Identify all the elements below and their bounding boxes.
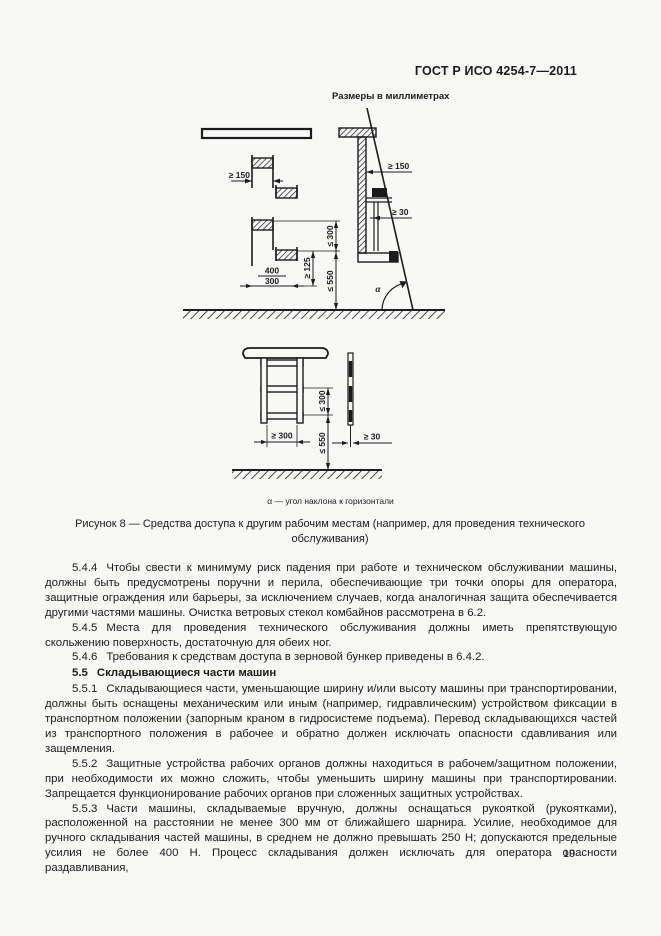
dim-clearance-height-label: ≥ 125: [302, 257, 312, 278]
body-text: 5.4.4Чтобы свести к минимуму риск падени…: [45, 561, 617, 876]
platform-cap: [243, 348, 328, 358]
dim-width-min-label: 300: [265, 276, 279, 286]
ladder-front-view: [261, 358, 303, 423]
angle-symbol-label: α: [375, 285, 381, 295]
angle-annotation: α: [375, 281, 407, 310]
ladder-side-view: [348, 353, 353, 447]
paragraph-5-5-1: 5.5.1Складывающиеся части, уменьшающие ш…: [45, 682, 617, 757]
clause-number: 5.5: [72, 667, 88, 679]
paragraph-5-4-6: 5.4.6Требования к средствам доступа в зе…: [45, 650, 617, 665]
dim-step-width: 400 300: [240, 266, 304, 289]
section-heading-5-5: 5.5Складывающиеся части машин: [45, 666, 617, 681]
dim-first-step-height-label: ≤ 550: [325, 270, 335, 291]
ground-hatching: [232, 470, 382, 479]
dim-ladder-width: ≥ 300: [254, 425, 310, 447]
dim-toe-clearance: ≥ 150: [366, 161, 412, 174]
clause-text: Требования к средствам доступа в зерново…: [106, 651, 484, 663]
paragraph-5-4-5: 5.4.5Места для проведения технического о…: [45, 621, 617, 651]
dim-rung-pitch-label: ≤ 300: [317, 390, 327, 411]
figure-8-diagram-ladder: ≥ 300 ≤ 300 ≤ 550 ≥ 30: [225, 340, 395, 485]
ground-hatching: [183, 310, 445, 319]
clause-text: Места для проведения технического обслуж…: [45, 622, 617, 649]
dim-width-preferred-label: 400: [265, 266, 279, 276]
clause-text: Части машины, складываемые вручную, долж…: [45, 803, 617, 875]
dim-rung-pitch-chain: ≤ 300 ≤ 550: [303, 388, 333, 470]
figure-8-diagram-steps: ≥ 150 400 300 ≤ 300 ≥ 125 ≤ 550: [175, 103, 455, 325]
dim-step-pitch-label: ≤ 300: [325, 225, 335, 246]
clause-text: Защитные устройства рабочих органов долж…: [45, 758, 617, 800]
paragraph-5-4-4: 5.4.4Чтобы свести к минимуму риск падени…: [45, 561, 617, 621]
figure-caption: Рисунок 8 — Средства доступа к другим ра…: [55, 517, 605, 546]
figure-alpha-note: α — угол наклона к горизонтали: [0, 496, 661, 506]
clause-number: 5.4.4: [72, 562, 97, 574]
clause-text: Складывающиеся части, уменьшающие ширину…: [45, 683, 617, 755]
dim-first-rung-height-label: ≤ 550: [317, 432, 327, 453]
clause-text: Чтобы свести к минимуму риск падения при…: [45, 562, 617, 619]
clause-number: 5.5.1: [72, 683, 97, 695]
figure-units-label: Размеры в миллиметрах: [332, 91, 449, 102]
clause-text: Складывающиеся части машин: [97, 667, 276, 679]
dim-ladder-width-label: ≥ 300: [271, 431, 292, 441]
clause-number: 5.4.5: [72, 622, 97, 634]
clause-number: 5.5.2: [72, 758, 97, 770]
dim-chains-right: ≤ 300 ≥ 125 ≤ 550: [273, 221, 340, 310]
dim-step-depth-label: ≥ 150: [229, 170, 250, 180]
dim-toe-clearance-label: ≥ 150: [388, 161, 409, 171]
standard-number-header: ГОСТ Р ИСО 4254-7—2011: [415, 64, 577, 78]
dim-rung-clearance-label: ≥ 30: [392, 207, 409, 217]
paragraph-5-5-3: 5.5.3Части машины, складываемые вручную,…: [45, 802, 617, 877]
platform-bar: [202, 129, 311, 138]
page-number: 19: [563, 848, 575, 860]
dim-rung-depth-label: ≥ 30: [364, 432, 381, 442]
clause-number: 5.4.6: [72, 651, 97, 663]
document-page: ГОСТ Р ИСО 4254-7—2011 Размеры в миллиме…: [0, 0, 661, 936]
dim-step-depth: ≥ 150: [229, 170, 283, 183]
paragraph-5-5-2: 5.5.2Защитные устройства рабочих органов…: [45, 757, 617, 802]
clause-number: 5.5.3: [72, 803, 97, 815]
dim-rung-depth: ≥ 30: [332, 432, 392, 446]
step-trays: [252, 155, 297, 266]
